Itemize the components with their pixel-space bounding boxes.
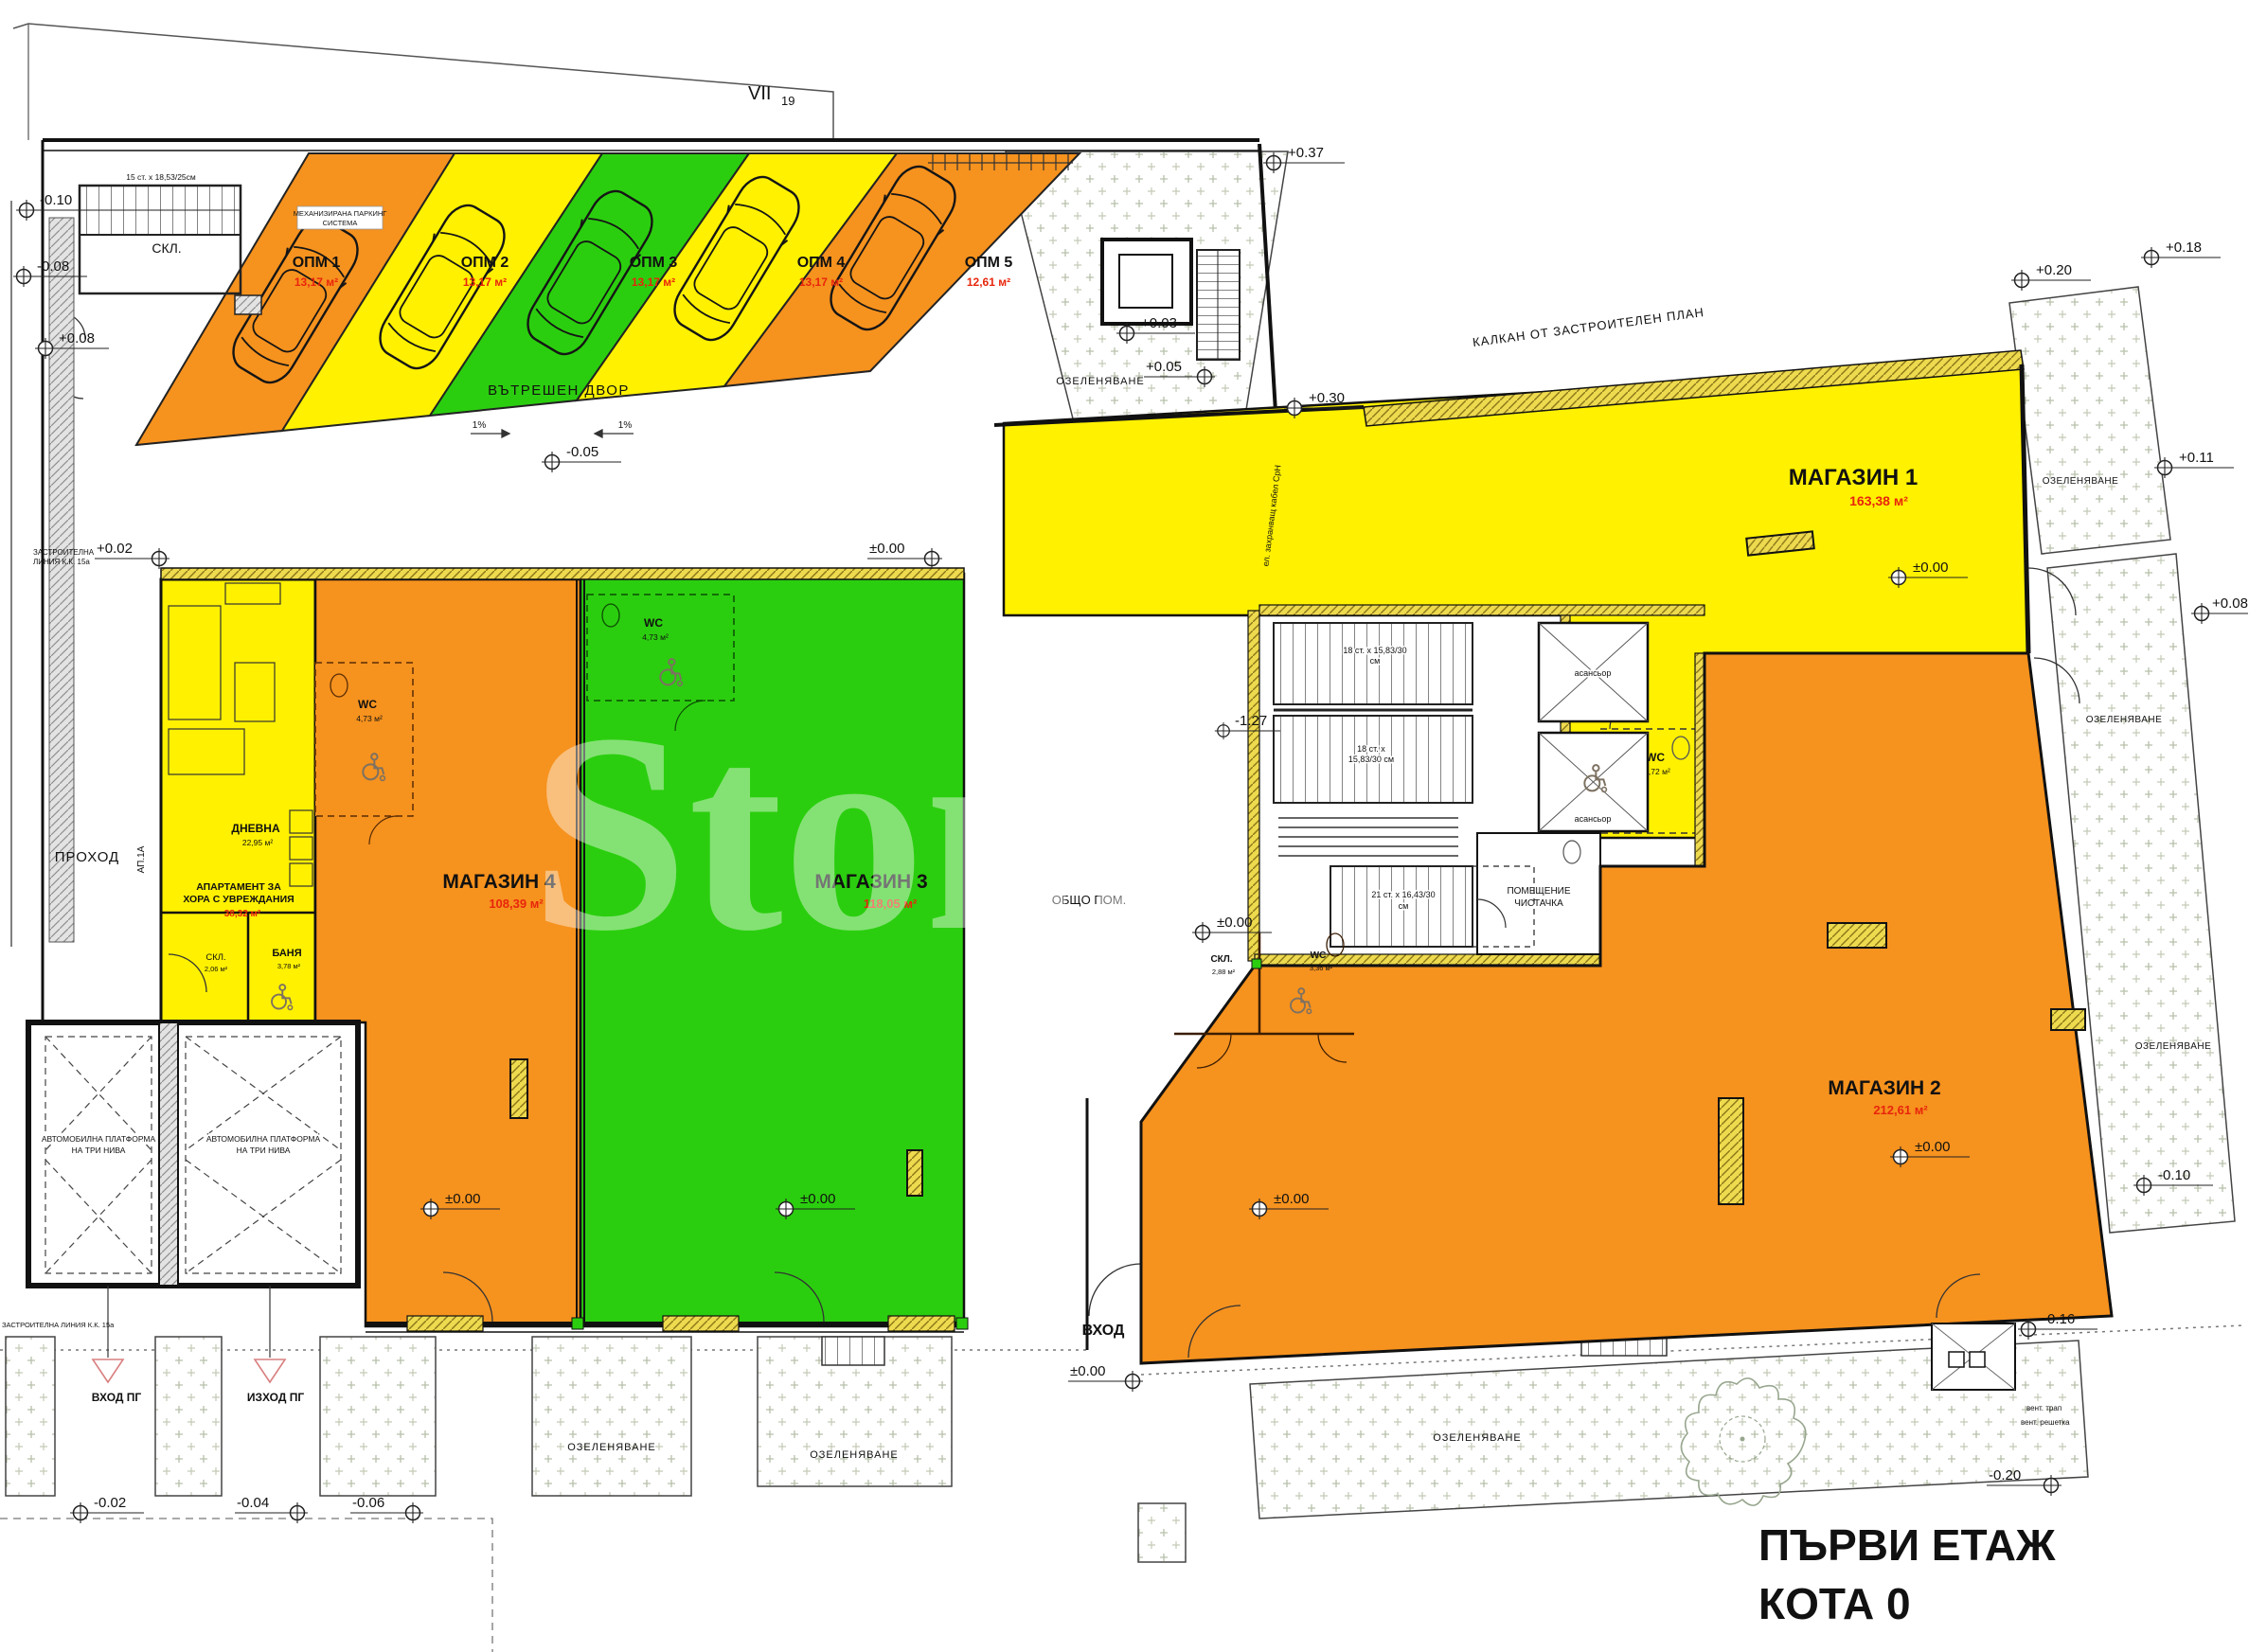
svg-text:±0.00: ±0.00 (1217, 915, 1252, 931)
svg-text:±0.00: ±0.00 (1070, 1363, 1105, 1379)
marker-p002: +0.02 (95, 541, 170, 569)
vhod-pg-label: ВХОД ПГ (92, 1391, 142, 1404)
mech-parking-note-2: СИСТЕМА (323, 219, 358, 227)
magazin-3-wc-label: WC (644, 616, 663, 630)
svg-text:-0.02: -0.02 (94, 1495, 126, 1511)
cleaner-room: ПОМЕЩЕНИЕ ЧИСТАЧКА (1477, 833, 1600, 954)
svg-text:+0.18: +0.18 (2166, 240, 2202, 256)
svg-text:±0.00: ±0.00 (800, 1191, 835, 1207)
elevator-2-label: асансьор (1575, 814, 1612, 824)
corridor-steps (1278, 818, 1458, 856)
marker-n005-court: -0.05 (542, 444, 621, 472)
landscape-label-upper-right: ОЗЕЛЕНЯВАНЕ (2043, 476, 2119, 487)
magazin-1-label: МАГАЗИН 1 (1789, 465, 1918, 490)
svg-text:+0.20: +0.20 (2036, 262, 2072, 278)
parking-spot-1-label: ОПМ 1 (293, 255, 341, 271)
drawing-title: ПЪРВИ ЕТАЖ КОТА 0 (1758, 1520, 2056, 1628)
stair-note-top: 15 ст. x 18,53/25см (126, 172, 196, 182)
courtyard-label: ВЪТРЕШЕН ДВОР (488, 382, 630, 399)
dnevna-label: ДНЕВНА (231, 822, 280, 835)
elevator-1: асансьор (1539, 623, 1648, 721)
elevator-2: асансьор (1539, 733, 1648, 831)
landscape-label-right2: ОЗЕЛЕНЯВАНЕ (2135, 1041, 2212, 1052)
landscape-label-top: ОЗЕЛЕНЯВАНЕ (1056, 376, 1145, 387)
vhod-pg-arrow (93, 1359, 123, 1382)
parking-spot-3-area: 13,17 м² (632, 275, 675, 289)
svg-text:-0.04: -0.04 (237, 1495, 269, 1511)
apartment: ДНЕВНА 22,95 м² АПАРТАМЕНТ ЗА ХОРА С УВР… (33, 548, 315, 1022)
svg-text:+0.30: +0.30 (1309, 390, 1345, 406)
parking-spot-3-label: ОПМ 3 (630, 255, 678, 271)
platform-2-label-1: АВТОМОБИЛНА ПЛАТФОРМА (206, 1134, 321, 1144)
marker-zero-vhod: ±0.00 (1068, 1363, 1143, 1392)
courtyard: ВЪТРЕШЕН ДВОР 1% 1% (471, 382, 634, 437)
kalkan-label: КАЛКАН ОТ ЗАСТРОИТЕЛЕН ПЛАН (1472, 305, 1705, 349)
svg-text:-1.27: -1.27 (1235, 713, 1267, 729)
prohod-label: ПРОХОД (55, 849, 119, 865)
svg-text:±0.00: ±0.00 (1913, 560, 1948, 576)
marker-zero-m3-top: ±0.00 (867, 541, 942, 569)
magazin-2-area: 212,61 м² (1873, 1103, 1928, 1117)
skl-top-label: СКЛ. (152, 240, 181, 256)
apartment-label-1: АПАРТАМЕНТ ЗА (196, 881, 281, 893)
core-stair-3-note: 21 ст. x 16,43/30 (1371, 890, 1435, 899)
core-stair-3-note-b: см (1399, 901, 1409, 911)
svg-text:+0.37: +0.37 (1288, 145, 1324, 161)
parking-spot-2-area: 13,17 м² (463, 275, 507, 289)
banya-label: БАНЯ (272, 948, 301, 959)
magazin-1-area: 163,38 м² (1849, 493, 1908, 508)
landscape-label-right1: ОЗЕЛЕНЯВАНЕ (2086, 715, 2163, 725)
svg-text:±0.00: ±0.00 (869, 541, 904, 557)
svg-text:-0.10: -0.10 (2158, 1167, 2190, 1183)
sheet-ref-main: VII (748, 83, 771, 104)
entrance: ВХОД (1082, 1323, 1125, 1339)
magazin-2-wc-area: 3,36 м² (1310, 964, 1333, 972)
svg-text:+0.05: +0.05 (1146, 359, 1182, 375)
parking-spot-5-label: ОПМ 5 (965, 255, 1013, 271)
pillar-m2-b (1719, 1098, 1743, 1204)
elevator-1-label: асансьор (1575, 668, 1612, 678)
title-line-1: ПЪРВИ ЕТАЖ (1758, 1520, 2056, 1570)
svg-text:-0.08: -0.08 (37, 258, 69, 275)
svg-text:+0.08: +0.08 (59, 330, 95, 346)
mech-parking-note-1: МЕХАНИЗИРАНА ПАРКИНГ (294, 209, 387, 218)
ap1a-label: АП.1А (136, 845, 147, 873)
slope-arrows (471, 430, 634, 437)
landscape-label-bottom-right: ОЗЕЛЕНЯВАНЕ (1433, 1432, 1522, 1444)
landscape-label-m4: ОЗЕЛЕНЯВАНЕ (567, 1442, 656, 1453)
marker-p008-right: +0.08 (2191, 595, 2248, 624)
core-stair-1-note-b: см (1370, 656, 1381, 666)
svg-text:-0.05: -0.05 (566, 444, 598, 460)
magazin-4-wc-label: WC (358, 698, 377, 711)
svg-text:±0.00: ±0.00 (1274, 1191, 1309, 1207)
dnevna-area: 22,95 м² (242, 838, 273, 847)
core-stair-2-note-b: 15,83/30 см (1348, 755, 1394, 764)
floor-plan-canvas: ОЗЕЛЕНЯВАНЕ ОЗЕЛЕНЯВАНЕ ОЗЕЛЕНЯВАНЕ ОЗЕЛ… (0, 0, 2249, 1652)
floor-plan-page: ОЗЕЛЕНЯВАНЕ ОЗЕЛЕНЯВАНЕ ОЗЕЛЕНЯВАНЕ ОЗЕЛ… (0, 0, 2249, 1652)
vent-note-1: вент. трап (2026, 1404, 2062, 1412)
watermark-text: Stone (530, 675, 1209, 989)
izhod-pg-label: ИЗХОД ПГ (247, 1391, 305, 1404)
platform-1-label-1: АВТОМОБИЛНА ПЛАТФОРМА (42, 1134, 156, 1144)
marker-p037: +0.37 (1263, 145, 1345, 173)
cleaner-room-label-2: ЧИСТАЧКА (1514, 898, 1563, 909)
platform-2-label-2: НА ТРИ НИВА (237, 1146, 291, 1155)
slope-right-label: 1% (618, 420, 633, 431)
landscape-m4 (532, 1337, 691, 1496)
pillar-m2-c (2051, 1009, 2085, 1030)
zline-note-1: ЗАСТРОИТЕЛНА (33, 548, 95, 557)
svg-text:±0.00: ±0.00 (445, 1191, 480, 1207)
parking-spot-4-area: 13,17 м² (799, 275, 843, 289)
izhod-pg-arrow (255, 1359, 285, 1382)
magazin-2-wc-label: WC (1311, 950, 1327, 961)
sheet-ref-sub: 19 (781, 94, 794, 108)
apartment-skl-area: 2,06 м² (205, 965, 228, 973)
vhod-label: ВХОД (1082, 1323, 1125, 1339)
svg-text:-0.10: -0.10 (40, 192, 72, 208)
apartment-skl-label: СКЛ. (205, 952, 225, 963)
parking-spot-2-label: ОПМ 2 (461, 255, 509, 271)
svg-text:-0.06: -0.06 (352, 1495, 384, 1511)
magazin-2-skl-label: СКЛ. (1210, 954, 1232, 965)
platform-1-label-2: НА ТРИ НИВА (72, 1146, 126, 1155)
landscape-upper-right (2009, 287, 2170, 554)
apartment-label-2: ХОРА С УВРЕЖДАНИЯ (183, 894, 294, 905)
pillar-m3 (907, 1150, 922, 1196)
parking-spot-5-area: 12,61 м² (967, 275, 1010, 289)
cleaner-room-label-1: ПОМЕЩЕНИЕ (1507, 886, 1570, 897)
svg-text:+0.08: +0.08 (2212, 595, 2248, 612)
neighbour-wall (49, 218, 74, 942)
marker-p011: +0.11 (2154, 450, 2234, 478)
svg-text:-0.20: -0.20 (1989, 1467, 2021, 1483)
core-stair-1-note: 18 ст. x 15,83/30 (1343, 646, 1406, 655)
zline-bottom-note: ЗАСТРОИТЕЛНА ЛИНИЯ К.К. 15а (2, 1321, 115, 1329)
zline-note-2: ЛИНИЯ К.К. 15а (33, 558, 90, 566)
banya-area: 3,78 м² (277, 962, 301, 970)
parking-spot-1-area: 13,17 м² (295, 275, 338, 289)
core-stair-2-note: 18 ст. x (1357, 744, 1385, 754)
north-wall (161, 568, 964, 579)
marker-p018: +0.18 (2141, 240, 2221, 268)
slope-left-label: 1% (473, 420, 487, 431)
title-line-2: КОТА 0 (1758, 1579, 1911, 1628)
svg-text:+0.03: +0.03 (1141, 315, 1177, 331)
marker-p020: +0.20 (2011, 262, 2091, 291)
vent-note-2: вент. решетка (2021, 1418, 2070, 1427)
magazin-2-label: МАГАЗИН 2 (1828, 1077, 1940, 1099)
apartment-area: 38,32 м² (224, 909, 261, 919)
landscape-label-m3: ОЗЕЛЕНЯВАНЕ (810, 1449, 899, 1461)
svg-text:-0.16: -0.16 (2043, 1311, 2075, 1327)
pillar-m4 (510, 1059, 527, 1118)
svg-text:±0.00: ±0.00 (1915, 1139, 1950, 1155)
parking-spot-4-label: ОПМ 4 (797, 255, 846, 271)
magazin-3-wc-area: 4,73 м² (642, 632, 669, 642)
svg-text:+0.02: +0.02 (97, 541, 133, 557)
magazin-2-skl-area: 2,88 м² (1212, 968, 1236, 976)
magazin-4-wc-area: 4,73 м² (356, 714, 383, 723)
svg-text:+0.11: +0.11 (2179, 450, 2214, 466)
pillar-m2-a (1828, 923, 1886, 948)
